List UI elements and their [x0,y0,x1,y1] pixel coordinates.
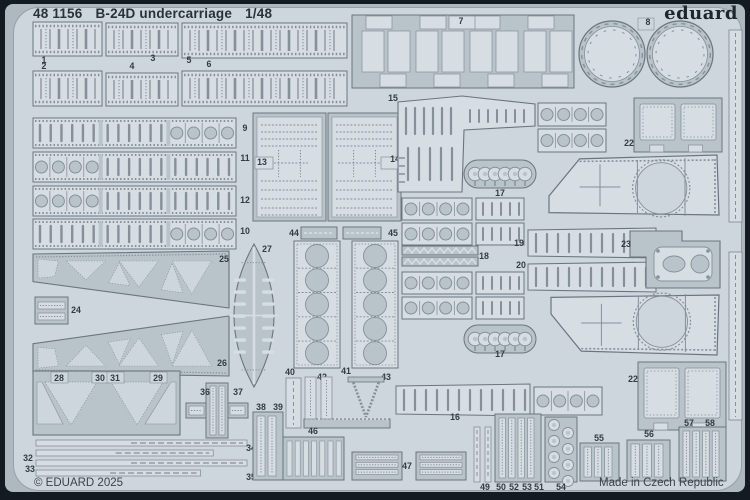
fret-part-1 [33,22,102,56]
part-number-label: 36 [200,387,210,397]
fret-part [729,252,742,420]
fret-part [538,103,606,126]
part-number-label: 2 [42,61,47,71]
part-number-label: 54 [556,482,566,492]
made-in-text: Made in Czech Republic [599,477,724,489]
part-number-label: 27 [262,244,272,254]
part-number-label: 28 [54,373,64,383]
fret-part-26 [33,316,229,376]
fret-part-47 [352,452,402,480]
fret-part-22 [634,98,722,152]
fret-part-3 [106,23,178,56]
part-number-label: 32 [23,453,33,463]
part-number-label: 6 [207,59,212,69]
part-number-label: 31 [110,373,120,383]
part-number-label: 25 [219,254,229,264]
part-number-label: 49 [480,482,490,492]
part-number-label: 5 [187,55,192,65]
fret-part-2 [33,71,102,106]
part-number-label: 38 [256,402,266,412]
part-number-label: 4 [130,61,135,71]
part-number-label: 53 [522,482,532,492]
fret-part-12 [33,186,236,216]
part-number-label: 12 [240,195,250,205]
part-number-label: 16 [450,412,460,422]
fret-part-43 [352,241,398,368]
part-number-label: 18 [479,251,489,261]
fret-part-54 [545,417,577,487]
part-number-label: 57 [684,418,694,428]
eduard-logo: eduard [664,3,738,24]
fret-part [551,293,719,355]
part-number-label: 8 [646,17,651,27]
fret-part-49 [474,427,491,482]
part-number-label: 39 [273,402,283,412]
part-number-label: 24 [71,305,81,315]
part-number-label: 26 [217,358,227,368]
fret-part [402,272,472,294]
part-number-label: 22 [628,374,638,384]
part-number-label: 58 [705,418,715,428]
fret-part-16 [396,384,530,416]
fret-part-9 [33,118,236,148]
part-number-label: 20 [516,260,526,270]
fret-part-50 [495,414,541,482]
fret-part [729,30,742,222]
fret-part-20 [528,262,656,292]
part-number-label: 7 [459,16,464,26]
part-number-label: 52 [509,482,519,492]
fret-part-6 [182,71,347,106]
part-number-label: 13 [257,157,267,167]
part-number-label: 46 [308,426,318,436]
part-number-label: 9 [243,123,248,133]
fret-parts-canvas: 1352467891112101314151722192018231722242… [0,0,750,500]
part-number-label: 29 [153,373,163,383]
copyright-text: © EDUARD 2025 [34,477,123,489]
part-number-label: 22 [624,138,634,148]
fret-part-8 [579,18,713,87]
part-number-label: 15 [388,93,398,103]
sheet-title: 48 1156 B-24D undercarriage 1/48 [33,6,272,21]
part-number-label: 23 [621,239,631,249]
fret-illustration: 1352467891112101314151722192018231722242… [0,0,750,500]
part-number-label: 17 [495,188,505,198]
product-name: B-24D undercarriage [95,6,232,21]
fret-part [416,452,466,480]
part-number-label: 50 [496,482,506,492]
part-number-label: 45 [388,228,398,238]
part-number-label: 47 [402,461,412,471]
fret-part-40 [286,378,301,428]
part-number-label: 19 [514,238,524,248]
fret-part [402,223,472,245]
part-number-label: 11 [240,153,249,163]
fret-part-17 [464,160,536,188]
fret-part-46 [283,437,344,480]
part-number-label: 55 [594,433,604,443]
part-number-label: 40 [285,367,295,377]
part-number-label: 33 [25,464,35,474]
fret-part-57 [679,427,726,481]
fret-part [476,272,524,294]
part-number-label: 30 [95,373,105,383]
part-number-label: 37 [233,387,243,397]
fret-part-55 [580,443,619,481]
part-number-label: 44 [289,228,299,238]
fret-part-32 [36,440,247,476]
part-number-label: 17 [495,349,505,359]
fret-part-14 [328,113,401,221]
fret-part-10 [33,219,236,249]
fret-part-13 [253,113,326,221]
part-number-label: 10 [240,226,250,236]
fret-part-27 [229,244,279,387]
fret-part-4 [106,73,178,106]
fret-part-38 [253,412,283,480]
fret-part-44 [301,227,337,239]
fret-part-45 [343,227,381,239]
fret-part [476,198,524,220]
catalog-number: 48 1156 [33,6,82,21]
fret-part [476,297,524,319]
part-number-label: 3 [151,53,156,63]
fret-part-5 [182,23,347,58]
part-number-label: 51 [534,482,544,492]
fret-part-56 [627,440,670,481]
fret-part [534,387,602,415]
scale-label: 1/48 [245,6,272,21]
fret-part-24 [35,297,68,324]
fret-part-41 [304,377,390,428]
fret-part [402,297,472,319]
part-number-label: 41 [341,366,351,376]
fret-part [538,129,606,152]
fret-part [402,198,472,220]
fret-part-42 [294,241,340,368]
fret-part-11 [33,152,236,182]
fret-part-18 [402,246,478,266]
fret-part [549,155,719,217]
part-number-label: 56 [644,429,654,439]
